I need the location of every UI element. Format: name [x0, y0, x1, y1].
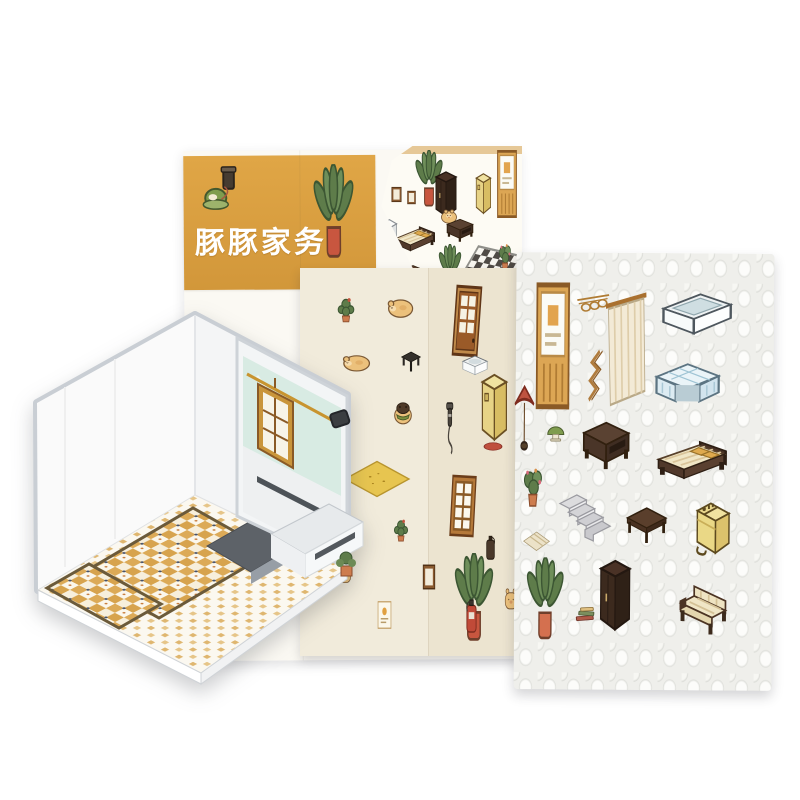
nightstand-sticker — [578, 416, 634, 474]
vacuum-cleaner-illustration — [196, 165, 244, 217]
room-model-3d — [25, 300, 375, 695]
poster-frame-sticker — [376, 600, 393, 630]
small-lamp-sticker — [543, 421, 568, 446]
wooden-door-sticker — [445, 283, 488, 359]
yellow-cabinet-sticker — [472, 372, 512, 444]
cover-wall-frame — [406, 190, 417, 205]
bed-sticker — [652, 434, 732, 490]
sticker-sheet-right — [513, 252, 774, 691]
banana-plant-sticker — [522, 557, 569, 641]
floor-lamp-sticker — [510, 382, 539, 456]
flower-plant-sticker — [516, 460, 550, 512]
black-stool-sticker — [398, 349, 424, 374]
cover-wall-frame — [390, 186, 403, 203]
sofa-sticker — [675, 580, 731, 640]
cover-sofa — [444, 216, 476, 244]
product-photo: 豚豚家务 — [0, 0, 800, 800]
pig-with-jacket-sticker — [390, 398, 416, 428]
red-mat-sticker — [483, 441, 503, 452]
window-frame-sticker — [445, 473, 480, 539]
cover-cabinet — [470, 172, 494, 216]
bathtub-sticker — [657, 285, 737, 342]
washing-machine-sticker — [689, 498, 737, 560]
cactus-sticker — [390, 515, 412, 544]
stairs-sticker — [552, 482, 612, 544]
coffee-table-sticker — [623, 500, 669, 550]
tiled-counter-sticker — [650, 357, 724, 416]
books-sticker — [571, 602, 601, 627]
striped-rug-sticker — [522, 530, 550, 552]
lying-pig-sticker — [385, 291, 415, 323]
curtain-sticker — [604, 290, 647, 410]
fire-extinguisher-sticker — [460, 597, 483, 635]
brown-frame-sticker — [421, 563, 437, 591]
banner-plant-illustration — [308, 164, 359, 260]
cover-door — [494, 150, 520, 218]
shower-head-sticker — [438, 402, 462, 457]
product-title: 豚豚家务 — [195, 217, 327, 262]
